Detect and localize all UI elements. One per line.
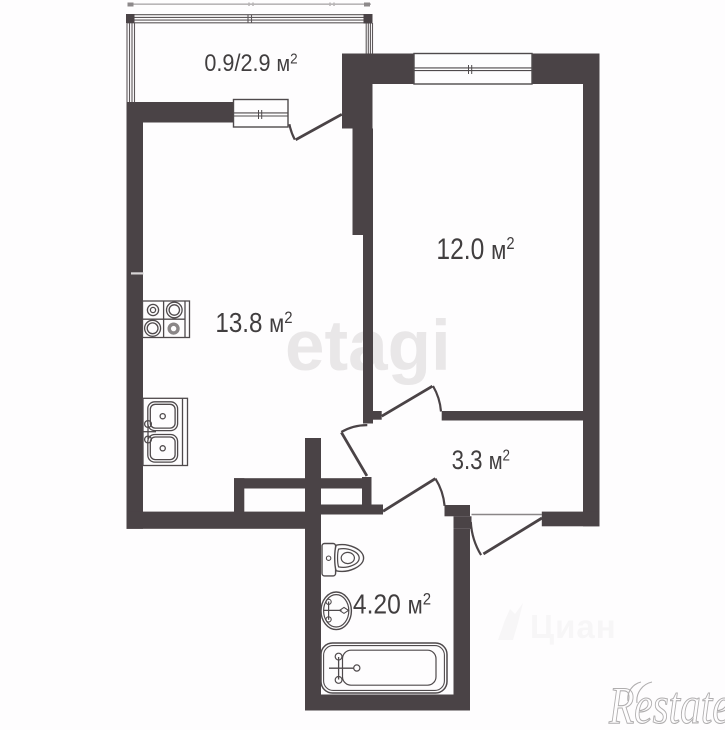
svg-text:0.9/2.9 м2: 0.9/2.9 м2 [204,49,297,76]
svg-text:Циан: Циан [530,608,617,645]
svg-text:3.3 м2: 3.3 м2 [452,446,510,475]
svg-text:4.20 м2: 4.20 м2 [353,588,431,620]
svg-text:Restate: Restate [608,677,725,725]
svg-text:12.0 м2: 12.0 м2 [436,232,514,266]
svg-text:13.8 м2: 13.8 м2 [215,308,292,338]
